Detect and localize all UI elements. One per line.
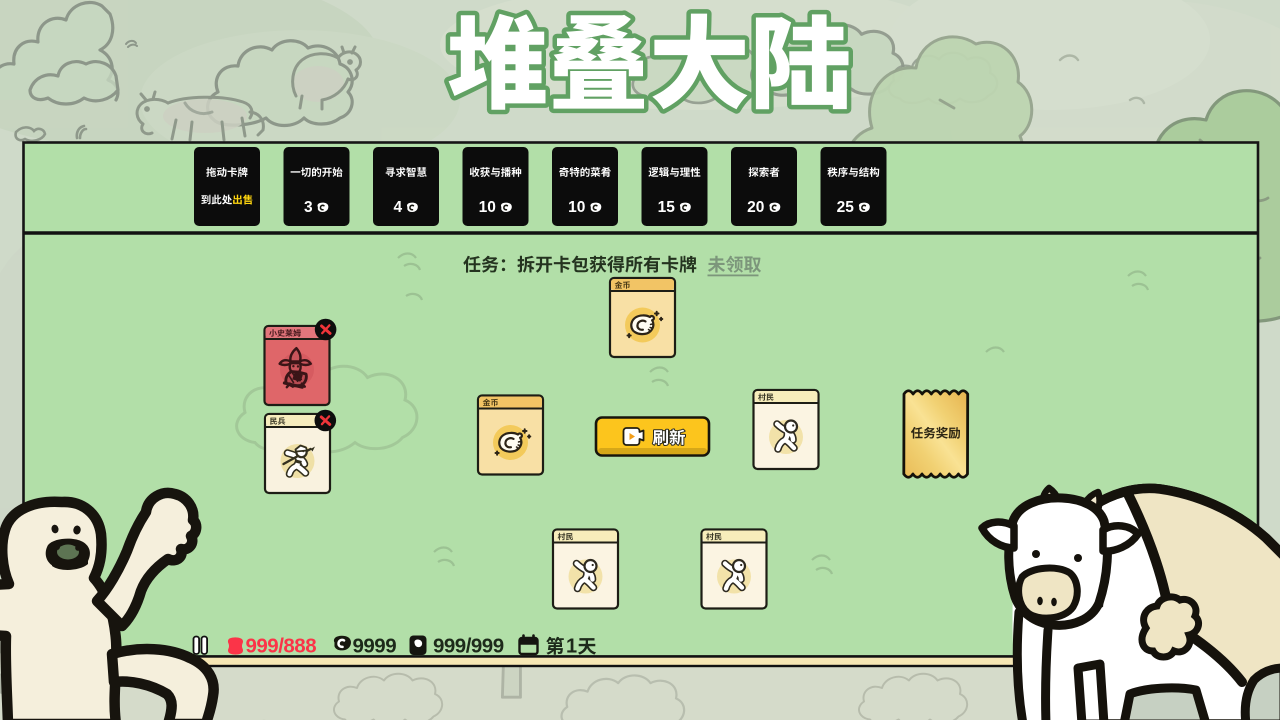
svg-text:25: 25	[837, 199, 855, 216]
svg-text:20: 20	[747, 199, 764, 216]
svg-text:1: 1	[566, 636, 577, 658]
svg-text:10: 10	[479, 199, 496, 216]
svg-text:999/888: 999/888	[246, 635, 317, 658]
svg-text:10: 10	[568, 199, 585, 216]
svg-text:15: 15	[658, 199, 676, 216]
svg-text:3: 3	[304, 199, 313, 216]
svg-text:4: 4	[394, 199, 403, 216]
svg-text:999/999: 999/999	[433, 635, 504, 658]
svg-text:9999: 9999	[353, 635, 397, 658]
